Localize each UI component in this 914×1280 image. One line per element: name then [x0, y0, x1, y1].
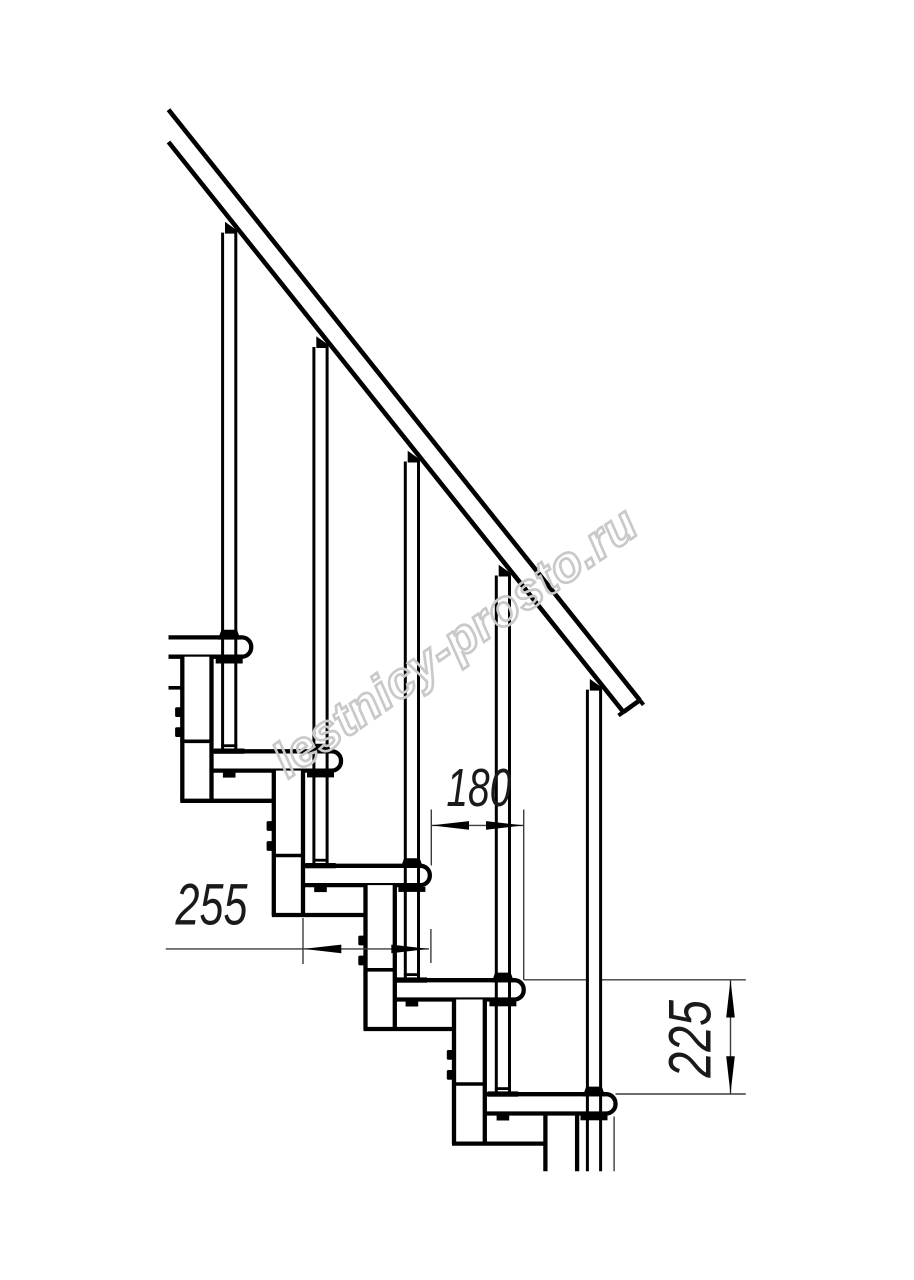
svg-text:180: 180: [446, 757, 511, 818]
svg-text:225: 225: [657, 999, 724, 1078]
svg-text:255: 255: [175, 871, 248, 937]
